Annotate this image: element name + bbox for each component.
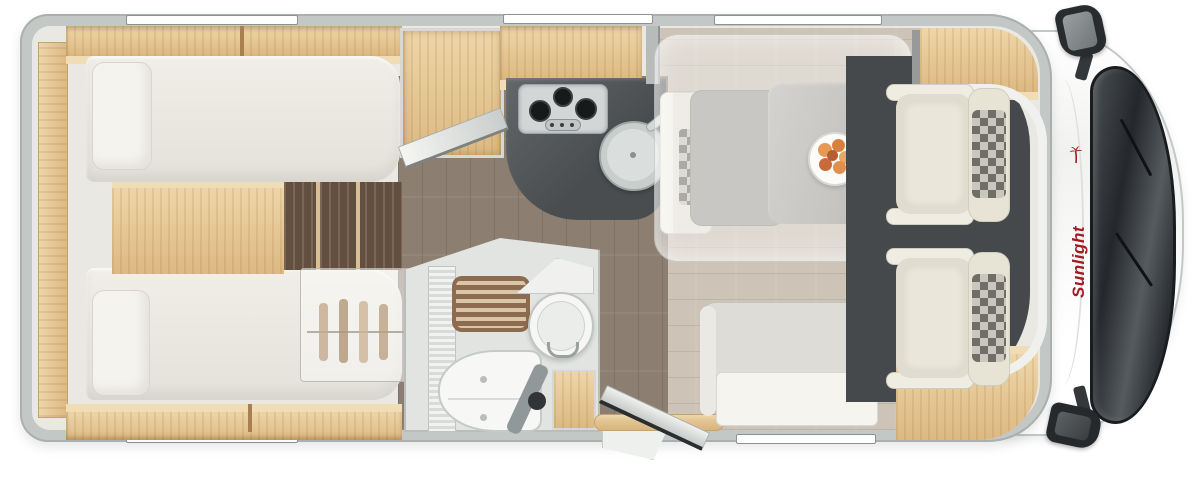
headboard-wood-panel	[38, 42, 68, 418]
step-divider-1	[316, 182, 320, 270]
toilet-handle	[547, 342, 579, 358]
shower-wood-grate	[452, 276, 530, 332]
fruit-5	[833, 161, 846, 174]
overhead-locker-bottom	[66, 404, 402, 440]
hanging-clothes-3	[359, 301, 368, 363]
passenger-seat	[874, 242, 1014, 394]
locker-divider-bottom	[248, 404, 252, 432]
basin-drain-2	[480, 414, 487, 421]
palm-tree-icon	[1068, 144, 1084, 164]
driver-seat	[874, 78, 1014, 230]
shower-door-knob	[528, 392, 546, 410]
hanging-clothes-4	[379, 304, 388, 360]
pillow-bottom-bed	[92, 290, 150, 396]
burner-right	[575, 98, 597, 120]
motorhome-floorplan-canvas: Sunlight	[0, 0, 1200, 488]
hob-knob-1	[550, 123, 554, 127]
sink-center-knob	[630, 152, 636, 158]
brand-logo-text: Sunlight	[1069, 166, 1089, 298]
step-divider-2	[356, 182, 360, 270]
hob-knob-3	[570, 123, 574, 127]
hanging-clothes-1	[319, 303, 328, 361]
side-bench-armpad	[700, 306, 716, 416]
hob-knob-2	[560, 123, 564, 127]
side-mirror-bottom-icon	[1044, 384, 1106, 448]
burner-top	[553, 87, 573, 107]
passenger-seat-cushion	[904, 266, 964, 370]
basin-drain-1	[480, 376, 487, 383]
driver-headrest-checker	[972, 110, 1006, 198]
rear-steps-dark-wood	[284, 182, 402, 270]
window-dinette-top	[714, 15, 882, 25]
hob-knob-panel	[545, 119, 581, 131]
pillow-top-bed	[92, 62, 152, 170]
gas-hob	[518, 84, 608, 134]
window-rear-top	[126, 15, 298, 25]
locker-divider-top	[240, 26, 244, 56]
toilet-bowl	[528, 292, 594, 360]
entry-step-treads	[602, 428, 668, 460]
hanging-clothes-2	[339, 299, 348, 363]
wardrobe-overlay	[300, 268, 412, 382]
window-kitchen-top	[503, 14, 653, 24]
driver-seat-cushion	[904, 102, 964, 206]
bathroom-cabinet	[552, 370, 596, 430]
window-dinette-bottom	[736, 434, 876, 444]
passenger-headrest-checker	[972, 274, 1006, 362]
fruit-6	[827, 150, 838, 161]
bed-step-platform	[112, 182, 284, 274]
side-mirror-top-icon	[1052, 2, 1112, 82]
